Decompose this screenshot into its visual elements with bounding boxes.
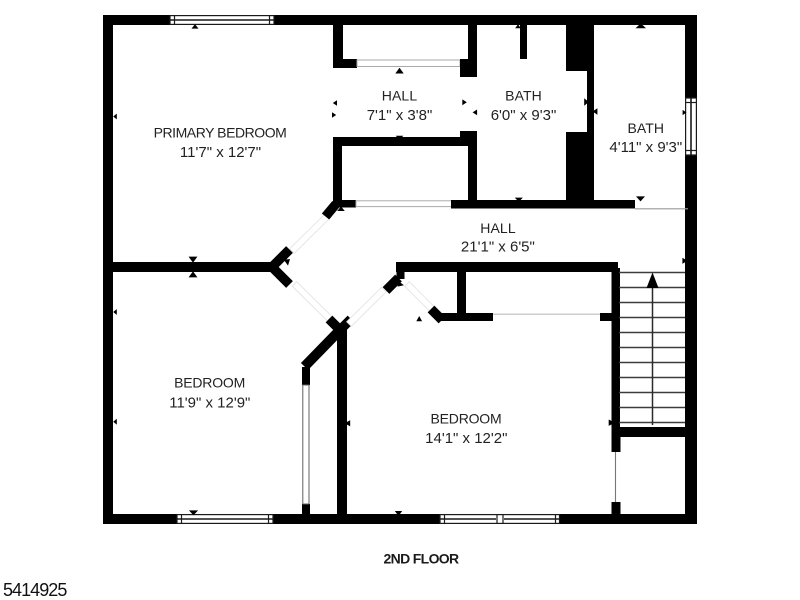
svg-text:PRIMARY BEDROOM: PRIMARY BEDROOM [154,124,287,140]
svg-text:11'7" x 12'7": 11'7" x 12'7" [180,144,261,161]
svg-text:HALL: HALL [480,220,516,236]
svg-text:21'1" x 6'5": 21'1" x 6'5" [461,239,535,256]
svg-text:4'11" x 9'3": 4'11" x 9'3" [609,139,682,156]
svg-text:7'1" x 3'8": 7'1" x 3'8" [367,107,433,124]
svg-text:2ND FLOOR: 2ND FLOOR [383,550,459,566]
svg-text:BATH: BATH [627,120,664,136]
svg-text:BEDROOM: BEDROOM [431,411,502,427]
svg-text:14'1" x 12'2": 14'1" x 12'2" [425,430,507,447]
svg-text:HALL: HALL [382,87,418,103]
svg-text:BATH: BATH [505,88,542,104]
svg-text:5414925: 5414925 [3,580,67,600]
svg-text:6'0" x 9'3": 6'0" x 9'3" [491,107,557,124]
svg-text:11'9" x 12'9": 11'9" x 12'9" [169,394,250,411]
svg-text:BEDROOM: BEDROOM [174,374,245,390]
